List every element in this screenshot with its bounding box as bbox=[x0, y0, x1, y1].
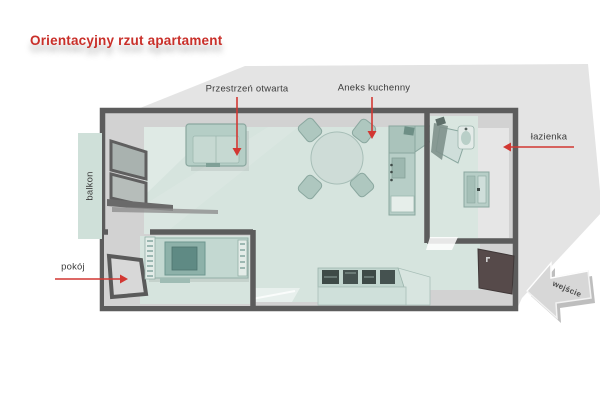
bedroom-door-icon bbox=[109, 256, 146, 297]
entry-door-icon bbox=[478, 249, 514, 294]
cooktop-island-icon bbox=[318, 268, 430, 305]
bathroom bbox=[426, 110, 516, 250]
label-balcony: balkon bbox=[85, 171, 96, 200]
floor-plan-page: Orientacyjny rzut apartament Przestrzeń … bbox=[0, 0, 600, 400]
sink-icon bbox=[458, 126, 474, 149]
page-title: Orientacyjny rzut apartament bbox=[30, 33, 222, 48]
bedroom bbox=[102, 230, 253, 308]
label-open-space: Przestrzeń otwarta bbox=[206, 84, 289, 95]
bed-icon bbox=[145, 237, 249, 283]
label-bathroom: łazienka bbox=[531, 132, 567, 143]
label-kitchenette: Aneks kuchenny bbox=[338, 83, 411, 94]
washing-machine-icon bbox=[464, 172, 489, 207]
label-bedroom: pokój bbox=[61, 262, 85, 273]
sofa-icon bbox=[186, 124, 249, 171]
